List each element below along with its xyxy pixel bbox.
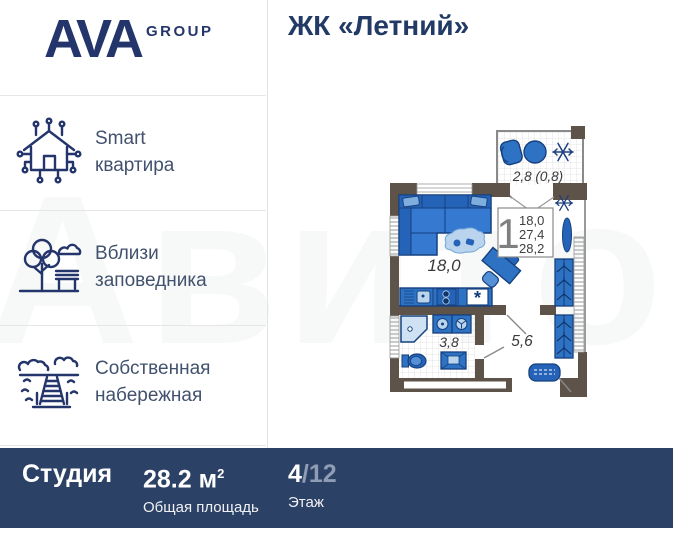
- apartment-type-value: Студия: [22, 460, 112, 488]
- area-living: 18,0: [519, 213, 544, 228]
- logo-main-text: AVA: [44, 16, 141, 64]
- kitchen-counter: *: [400, 288, 492, 308]
- living-room-label: 18,0: [427, 256, 461, 275]
- ava-group-logo: AVA GROUP: [44, 16, 214, 64]
- feature-label-line2: набережная: [95, 382, 210, 409]
- park-icon: [14, 231, 84, 301]
- smart-home-icon: [14, 116, 84, 186]
- logo-sub-text: GROUP: [146, 23, 214, 40]
- bottom-wall-inset: [404, 382, 506, 389]
- window-left-2: [390, 316, 399, 358]
- area-value: 28.2 м: [143, 465, 217, 493]
- feature-label-line2: заповедника: [95, 267, 207, 294]
- rug-toy: [454, 240, 461, 247]
- balcony-area-label: 2,8 (0,8): [512, 169, 563, 184]
- bathroom-label: 3,8: [439, 334, 459, 350]
- area-caption: Общая площадь: [143, 499, 259, 516]
- feature-label-line1: Вблизи: [95, 240, 207, 267]
- bathroom: 3,8: [399, 315, 475, 378]
- wardrobe-lower: [555, 315, 573, 358]
- feature-label-line1: Собственная: [95, 355, 210, 382]
- feature-label-line2: квартира: [95, 152, 174, 179]
- summary-bar: Студия 28.2 м2 Общая площадь 4/12 Этаж: [0, 448, 673, 528]
- balcony-table: [524, 141, 546, 163]
- tv: [563, 218, 572, 252]
- kitchen-marker: *: [474, 288, 481, 308]
- total-area: 28.2 м2 Общая площадь: [143, 460, 259, 516]
- feature-label: Вблизи заповедника: [95, 240, 207, 294]
- floor-info: 4/12 Этаж: [288, 460, 337, 511]
- sofa-pillow: [470, 196, 487, 207]
- legend-box: 1 18,0 27,4 28,2: [496, 208, 553, 257]
- area-sup: 2: [217, 466, 224, 481]
- bathroom-door-swing: [484, 347, 504, 358]
- entrance-mat: [529, 364, 560, 381]
- sofa-pillow: [403, 196, 420, 207]
- wall-block: [571, 126, 585, 139]
- window-left-1: [390, 216, 399, 256]
- floor-caption: Этаж: [288, 494, 337, 511]
- area-total: 28,2: [519, 241, 544, 256]
- room-count: 1: [496, 210, 519, 257]
- floor-plan: 2,8 (0,8): [267, 95, 673, 448]
- wardrobe-upper: [555, 259, 573, 306]
- hallway-label: 5,6: [511, 333, 533, 350]
- shaft-hatch: [574, 237, 584, 352]
- feature-near-reserve: Вблизи заповедника: [0, 210, 267, 325]
- feature-own-embankment: Собственная набережная: [0, 325, 267, 440]
- embankment-icon: [14, 346, 84, 416]
- divider-4: [0, 445, 266, 446]
- floor-total: /12: [302, 460, 337, 488]
- feature-label: Собственная набережная: [95, 355, 210, 409]
- apartment-type: Студия: [22, 460, 112, 488]
- complex-title: ЖК «Летний»: [288, 10, 469, 42]
- feature-label: Smart квартира: [95, 125, 174, 179]
- area-no-balcony: 27,4: [519, 227, 544, 242]
- floor-current: 4: [288, 460, 302, 488]
- hall-door-swing: [507, 315, 526, 334]
- feature-smart-apartment: Smart квартира: [0, 95, 267, 210]
- feature-label-line1: Smart: [95, 125, 174, 152]
